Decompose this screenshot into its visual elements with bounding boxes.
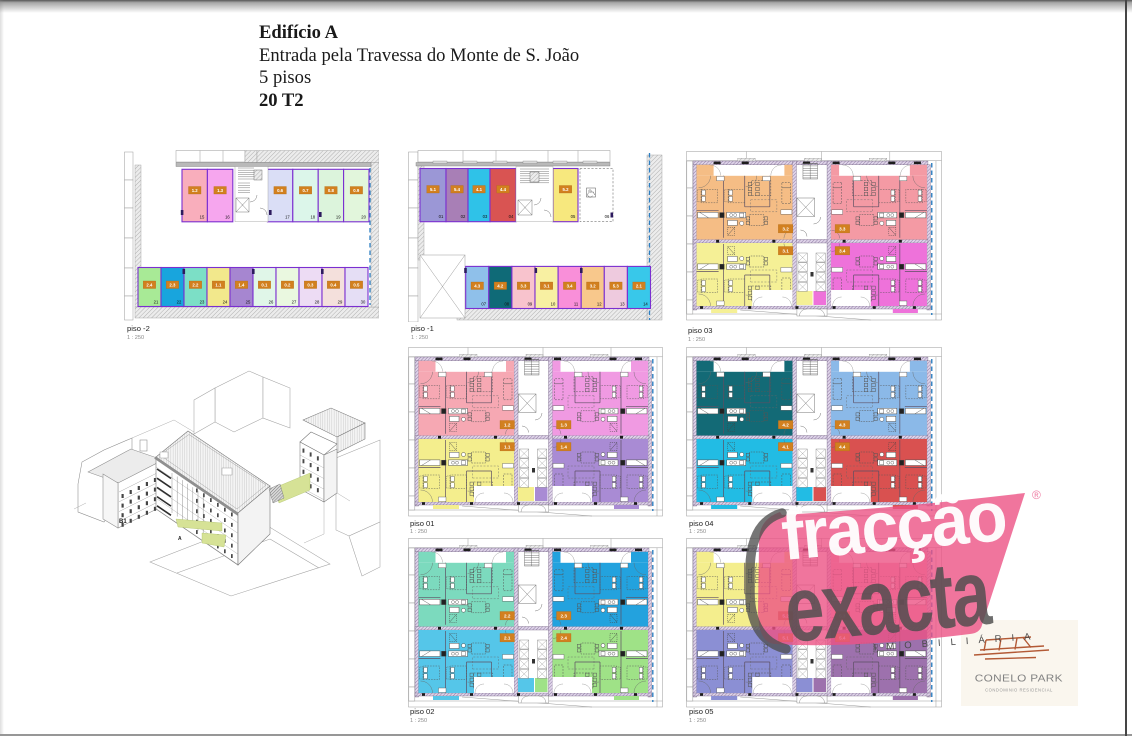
svg-text:3.1: 3.1: [544, 284, 551, 289]
svg-text:05: 05: [571, 214, 576, 219]
svg-text:4.2: 4.2: [782, 423, 789, 428]
svg-text:03: 03: [483, 214, 488, 219]
svg-text:2.2: 2.2: [192, 283, 199, 288]
svg-text:4.1: 4.1: [782, 445, 789, 450]
svg-text:4.4: 4.4: [500, 187, 507, 192]
svg-text:24: 24: [223, 300, 228, 305]
svg-text:2.1: 2.1: [636, 284, 643, 289]
svg-text:0.8: 0.8: [328, 188, 335, 193]
svg-text:3.3: 3.3: [839, 227, 846, 232]
svg-text:06: 06: [605, 214, 610, 219]
svg-text:20: 20: [361, 215, 366, 220]
svg-text:2.4: 2.4: [146, 283, 153, 288]
svg-text:4.3: 4.3: [839, 423, 846, 428]
svg-text:1.2: 1.2: [192, 188, 199, 193]
svg-text:3.4: 3.4: [839, 249, 846, 254]
svg-text:1.1: 1.1: [215, 283, 222, 288]
svg-text:09: 09: [528, 302, 533, 307]
svg-text:04: 04: [509, 214, 514, 219]
svg-text:27: 27: [292, 300, 297, 305]
svg-text:1.4: 1.4: [238, 283, 245, 288]
svg-text:30: 30: [361, 300, 366, 305]
svg-text:3.2: 3.2: [782, 227, 789, 232]
svg-text:4.4: 4.4: [839, 445, 846, 450]
svg-text:5.4: 5.4: [454, 187, 461, 192]
svg-text:18: 18: [310, 215, 315, 220]
svg-text:11: 11: [574, 302, 579, 307]
svg-text:10: 10: [551, 302, 556, 307]
svg-text:®: ®: [1032, 488, 1041, 502]
svg-text:0.2: 0.2: [284, 283, 291, 288]
svg-text:08: 08: [504, 302, 509, 307]
svg-text:02: 02: [461, 214, 466, 219]
svg-text:12: 12: [597, 302, 602, 307]
svg-text:29: 29: [338, 300, 343, 305]
svg-text:21: 21: [154, 300, 159, 305]
svg-text:5.2: 5.2: [563, 187, 570, 192]
svg-text:2.1: 2.1: [504, 636, 511, 641]
svg-text:0.5: 0.5: [353, 283, 360, 288]
svg-text:25: 25: [246, 300, 251, 305]
svg-text:2.3: 2.3: [169, 283, 176, 288]
svg-text:01: 01: [439, 214, 444, 219]
svg-text:1.4: 1.4: [561, 445, 568, 450]
svg-text:15: 15: [200, 215, 205, 220]
svg-text:3.4: 3.4: [567, 284, 574, 289]
svg-text:4.2: 4.2: [497, 284, 504, 289]
svg-text:1.1: 1.1: [504, 445, 511, 450]
svg-text:22: 22: [177, 300, 182, 305]
svg-text:A: A: [178, 536, 182, 542]
svg-text:1.3: 1.3: [561, 423, 568, 428]
svg-text:5.3: 5.3: [613, 284, 620, 289]
svg-text:0.4: 0.4: [330, 283, 337, 288]
svg-text:13: 13: [620, 302, 625, 307]
svg-text:14: 14: [643, 302, 648, 307]
svg-text:2.4: 2.4: [561, 636, 568, 641]
svg-text:0.7: 0.7: [303, 188, 310, 193]
svg-text:3.3: 3.3: [520, 284, 527, 289]
svg-text:B1: B1: [119, 519, 127, 525]
svg-text:1.3: 1.3: [217, 188, 224, 193]
svg-text:17: 17: [285, 215, 290, 220]
svg-text:1.2: 1.2: [504, 423, 511, 428]
svg-text:4.1: 4.1: [476, 187, 483, 192]
svg-text:2.2: 2.2: [504, 614, 511, 619]
svg-text:28: 28: [315, 300, 320, 305]
svg-text:23: 23: [200, 300, 205, 305]
svg-text:26: 26: [269, 300, 274, 305]
svg-text:19: 19: [336, 215, 341, 220]
svg-text:07: 07: [481, 302, 486, 307]
svg-text:0.3: 0.3: [307, 283, 314, 288]
svg-text:3.2: 3.2: [590, 284, 597, 289]
svg-text:2.3: 2.3: [561, 614, 568, 619]
svg-text:3.1: 3.1: [782, 249, 789, 254]
svg-text:4.3: 4.3: [474, 284, 481, 289]
svg-text:5.1: 5.1: [430, 187, 437, 192]
svg-text:0.6: 0.6: [277, 188, 284, 193]
svg-text:0.1: 0.1: [261, 283, 268, 288]
svg-text:0.9: 0.9: [353, 188, 360, 193]
svg-text:16: 16: [225, 215, 230, 220]
